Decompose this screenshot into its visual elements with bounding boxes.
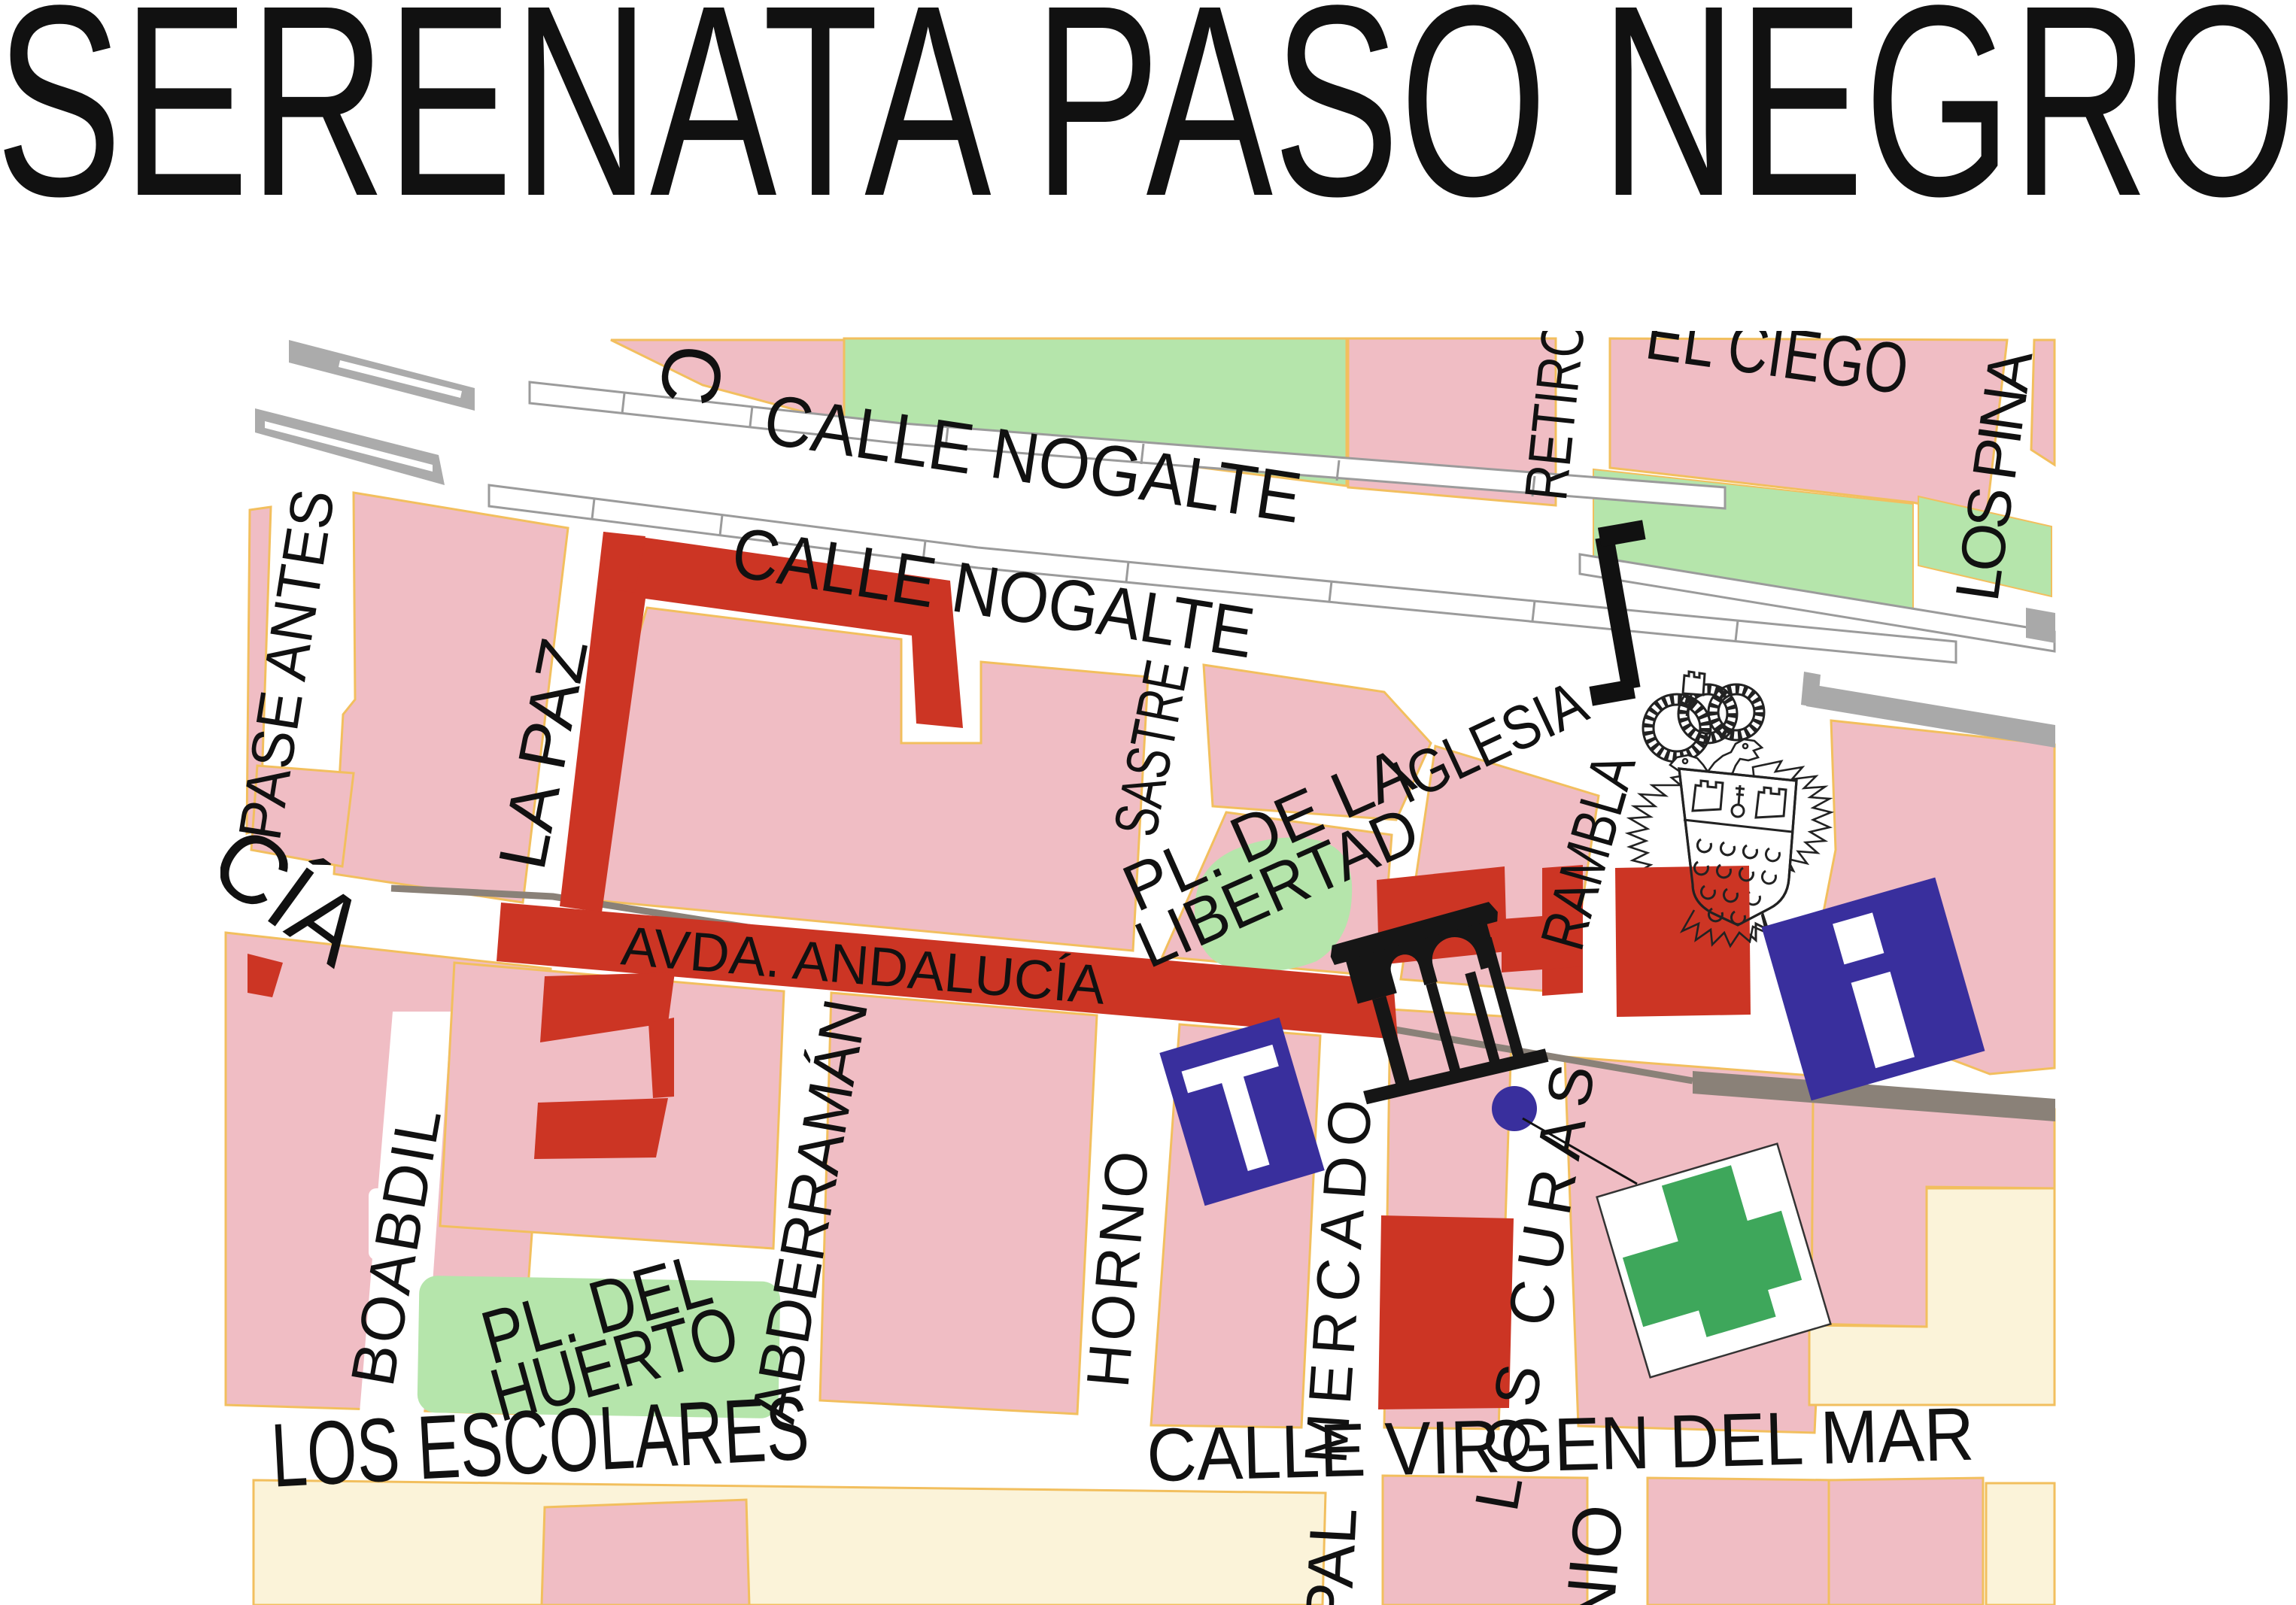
svg-text:NIO: NIO (1550, 1501, 1638, 1605)
svg-text:PAL: PAL (1292, 1506, 1371, 1605)
svg-text:SERENATA PASO NEGRO: SERENATA PASO NEGRO (0, 0, 2296, 253)
